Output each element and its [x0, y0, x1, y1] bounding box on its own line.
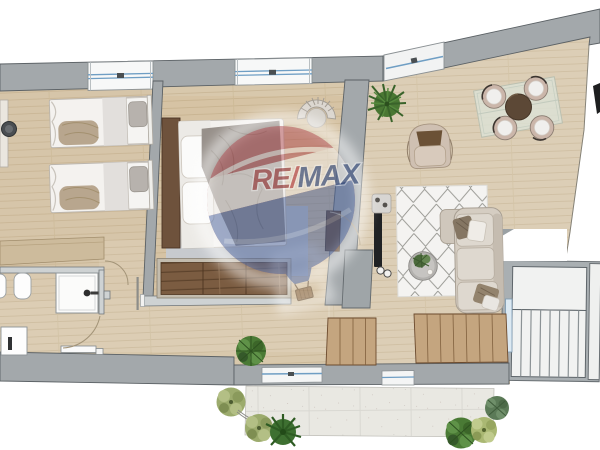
svg-text:RE/MAX: RE/MAX — [250, 158, 362, 197]
